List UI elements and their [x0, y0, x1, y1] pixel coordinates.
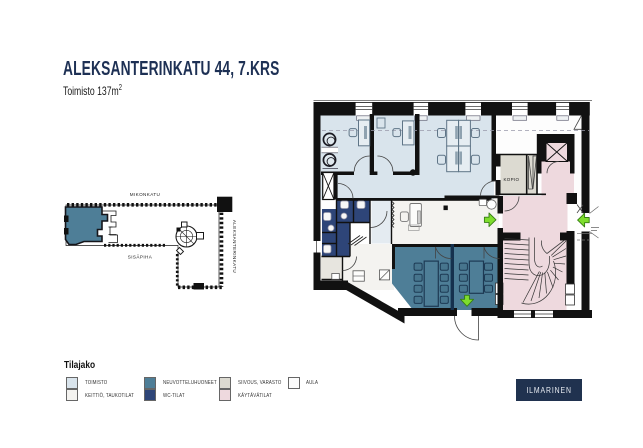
- svg-text:MIKONKATU: MIKONKATU: [130, 192, 161, 197]
- svg-text:SISÄPIHA: SISÄPIHA: [128, 254, 153, 260]
- svg-text:KOPIO: KOPIO: [504, 177, 520, 182]
- svg-text:ALEKSANTERINKATU: ALEKSANTERINKATU: [232, 220, 237, 273]
